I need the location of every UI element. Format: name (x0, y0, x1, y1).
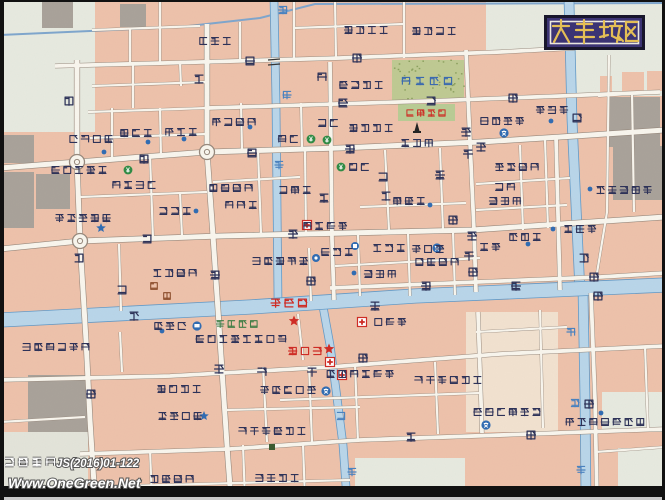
svg-text:Www.OneGreen.Net: Www.OneGreen.Net (8, 475, 142, 491)
svg-text:JS(2016)01-122: JS(2016)01-122 (56, 458, 140, 470)
